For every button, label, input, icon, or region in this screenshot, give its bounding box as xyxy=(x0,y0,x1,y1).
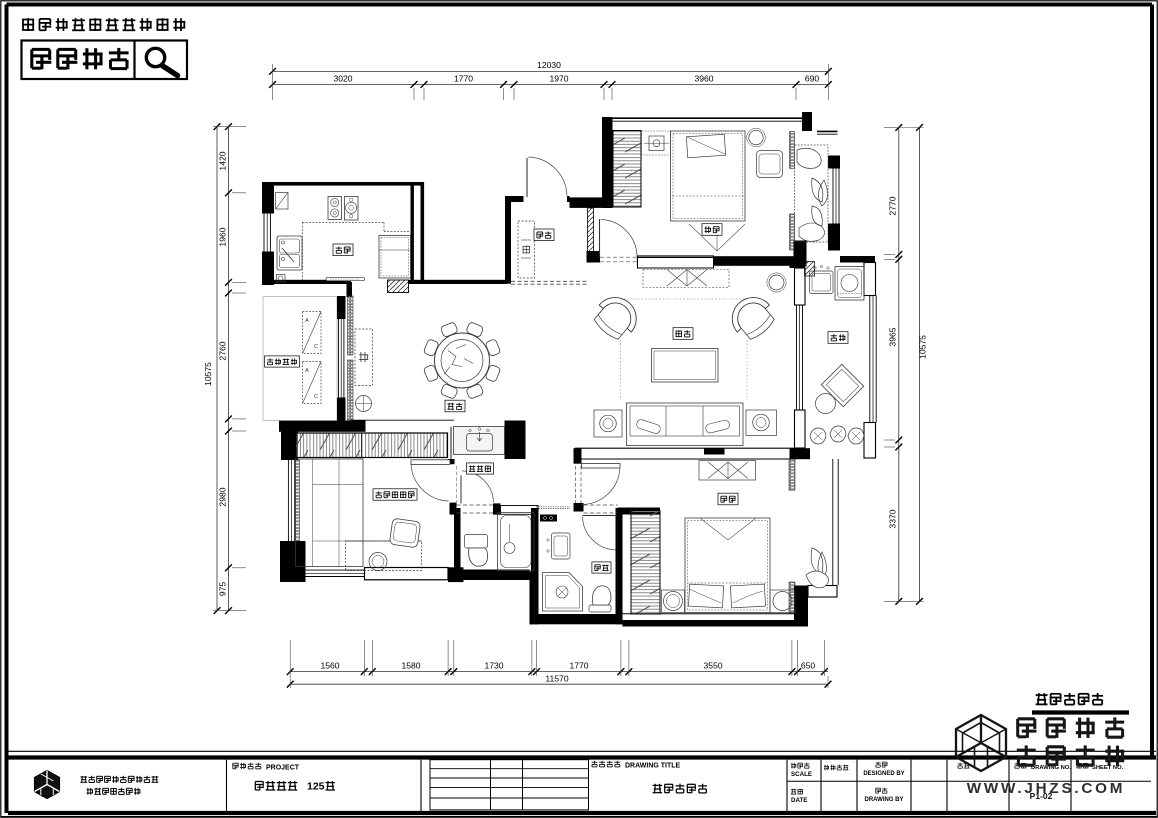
svg-text:1730: 1730 xyxy=(484,661,503,671)
svg-text:3370: 3370 xyxy=(888,509,898,528)
svg-text:10575: 10575 xyxy=(918,335,928,359)
svg-text:2760: 2760 xyxy=(218,341,228,360)
svg-text:1970: 1970 xyxy=(549,74,568,84)
svg-text:690: 690 xyxy=(805,74,820,84)
svg-text:DRAWING BY: DRAWING BY xyxy=(865,797,904,803)
svg-text:C: C xyxy=(314,394,318,400)
svg-text:3550: 3550 xyxy=(703,661,722,671)
svg-text:1580: 1580 xyxy=(401,661,420,671)
svg-text:A: A xyxy=(305,318,309,324)
svg-text:1770: 1770 xyxy=(569,661,588,671)
svg-text:1770: 1770 xyxy=(454,74,473,84)
svg-text:975: 975 xyxy=(218,582,228,597)
svg-text:3960: 3960 xyxy=(694,74,713,84)
svg-text:DESIGNED BY: DESIGNED BY xyxy=(863,771,904,777)
svg-text:A: A xyxy=(305,368,309,374)
svg-text:2770: 2770 xyxy=(888,196,898,215)
svg-text:3965: 3965 xyxy=(888,327,898,346)
svg-text:1960: 1960 xyxy=(218,227,228,246)
svg-text:P1-02: P1-02 xyxy=(1030,791,1053,801)
svg-text:10575: 10575 xyxy=(203,362,213,386)
svg-text:PROJECT: PROJECT xyxy=(266,764,300,771)
svg-text:1420: 1420 xyxy=(218,151,228,170)
svg-text:12030: 12030 xyxy=(537,60,561,70)
svg-text:2980: 2980 xyxy=(218,487,228,506)
svg-text:650: 650 xyxy=(801,661,816,671)
svg-text:1560: 1560 xyxy=(320,661,339,671)
svg-text:C: C xyxy=(314,344,318,350)
svg-text:11570: 11570 xyxy=(545,674,568,684)
svg-text:SCALE: SCALE xyxy=(791,771,812,778)
svg-text:DRAWING TITLE: DRAWING TITLE xyxy=(625,762,681,769)
svg-text:125: 125 xyxy=(307,781,325,793)
svg-text:3020: 3020 xyxy=(333,74,352,84)
svg-text:DATE: DATE xyxy=(791,797,807,804)
